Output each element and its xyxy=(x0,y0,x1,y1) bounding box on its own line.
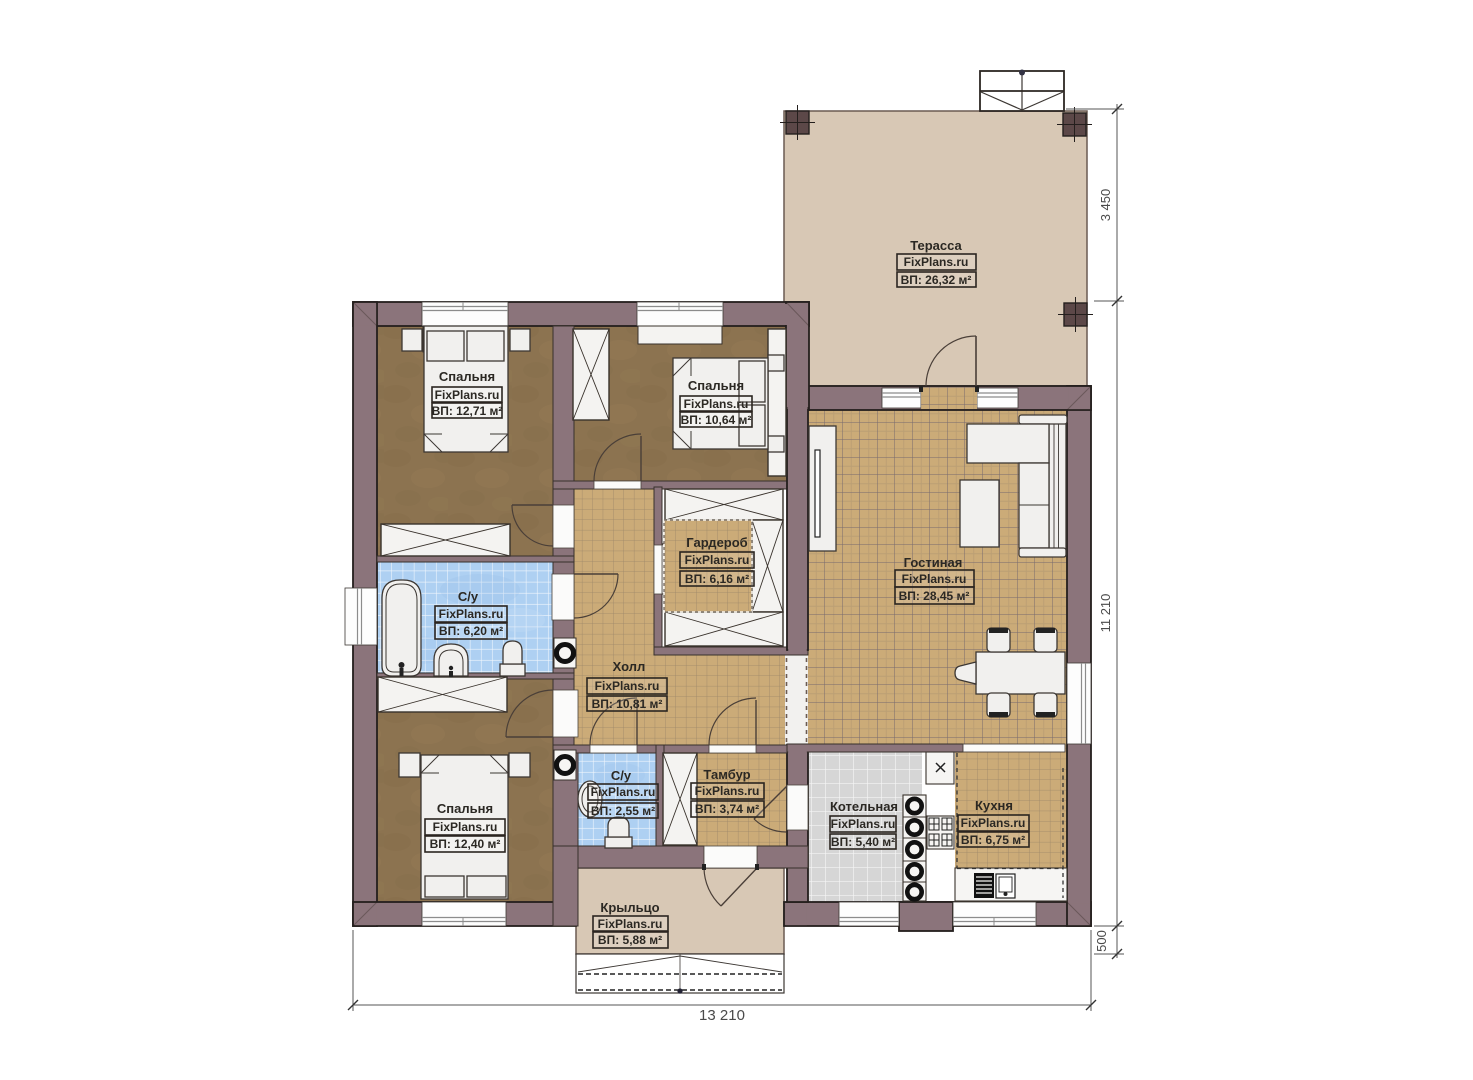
svg-text:3 450: 3 450 xyxy=(1098,189,1113,222)
svg-text:FixPlans.ru: FixPlans.ru xyxy=(439,607,504,621)
svg-text:Тамбур: Тамбур xyxy=(703,767,750,782)
svg-text:Спальня: Спальня xyxy=(688,378,744,393)
svg-text:ВП: 26,32 м²: ВП: 26,32 м² xyxy=(901,273,972,287)
svg-text:FixPlans.ru: FixPlans.ru xyxy=(435,388,500,402)
svg-text:FixPlans.ru: FixPlans.ru xyxy=(902,572,967,586)
svg-text:ВП: 6,16 м²: ВП: 6,16 м² xyxy=(685,572,749,586)
svg-text:ВП: 5,40 м²: ВП: 5,40 м² xyxy=(831,835,895,849)
svg-text:FixPlans.ru: FixPlans.ru xyxy=(684,397,749,411)
svg-text:ВП: 3,74 м²: ВП: 3,74 м² xyxy=(695,802,759,816)
svg-text:Гардероб: Гардероб xyxy=(686,535,747,550)
svg-text:Крыльцо: Крыльцо xyxy=(600,900,659,915)
svg-text:FixPlans.ru: FixPlans.ru xyxy=(904,255,969,269)
svg-text:FixPlans.ru: FixPlans.ru xyxy=(685,553,750,567)
svg-text:13 210: 13 210 xyxy=(699,1007,745,1024)
svg-text:Спальня: Спальня xyxy=(437,801,493,816)
svg-text:FixPlans.ru: FixPlans.ru xyxy=(961,816,1026,830)
svg-text:ВП: 6,20 м²: ВП: 6,20 м² xyxy=(439,624,503,638)
svg-text:ВП: 5,88 м²: ВП: 5,88 м² xyxy=(598,933,662,947)
svg-text:FixPlans.ru: FixPlans.ru xyxy=(598,917,663,931)
svg-text:ВП: 10,81 м²: ВП: 10,81 м² xyxy=(592,697,663,711)
svg-text:С/у: С/у xyxy=(458,589,479,604)
svg-text:FixPlans.ru: FixPlans.ru xyxy=(433,820,498,834)
svg-text:Спальня: Спальня xyxy=(439,369,495,384)
svg-text:ВП: 10,64 м²: ВП: 10,64 м² xyxy=(681,413,752,427)
svg-text:ВП: 6,75 м²: ВП: 6,75 м² xyxy=(961,833,1025,847)
svg-text:С/у: С/у xyxy=(611,768,632,783)
svg-text:500: 500 xyxy=(1094,930,1109,952)
svg-text:ВП: 12,40 м²: ВП: 12,40 м² xyxy=(430,837,501,851)
svg-text:11 210: 11 210 xyxy=(1098,594,1113,633)
svg-text:Котельная: Котельная xyxy=(830,799,898,814)
svg-text:FixPlans.ru: FixPlans.ru xyxy=(831,817,896,831)
svg-text:Кухня: Кухня xyxy=(975,798,1013,813)
svg-text:ВП: 28,45 м²: ВП: 28,45 м² xyxy=(899,589,970,603)
svg-text:Терасса: Терасса xyxy=(910,238,962,253)
svg-text:FixPlans.ru: FixPlans.ru xyxy=(695,784,760,798)
svg-text:FixPlans.ru: FixPlans.ru xyxy=(595,679,660,693)
svg-text:FixPlans.ru: FixPlans.ru xyxy=(591,785,656,799)
svg-text:Холл: Холл xyxy=(613,659,646,674)
svg-text:ВП: 2,55 м²: ВП: 2,55 м² xyxy=(591,804,655,818)
svg-text:ВП: 12,71 м²: ВП: 12,71 м² xyxy=(432,404,503,418)
svg-text:Гостиная: Гостиная xyxy=(904,555,963,570)
